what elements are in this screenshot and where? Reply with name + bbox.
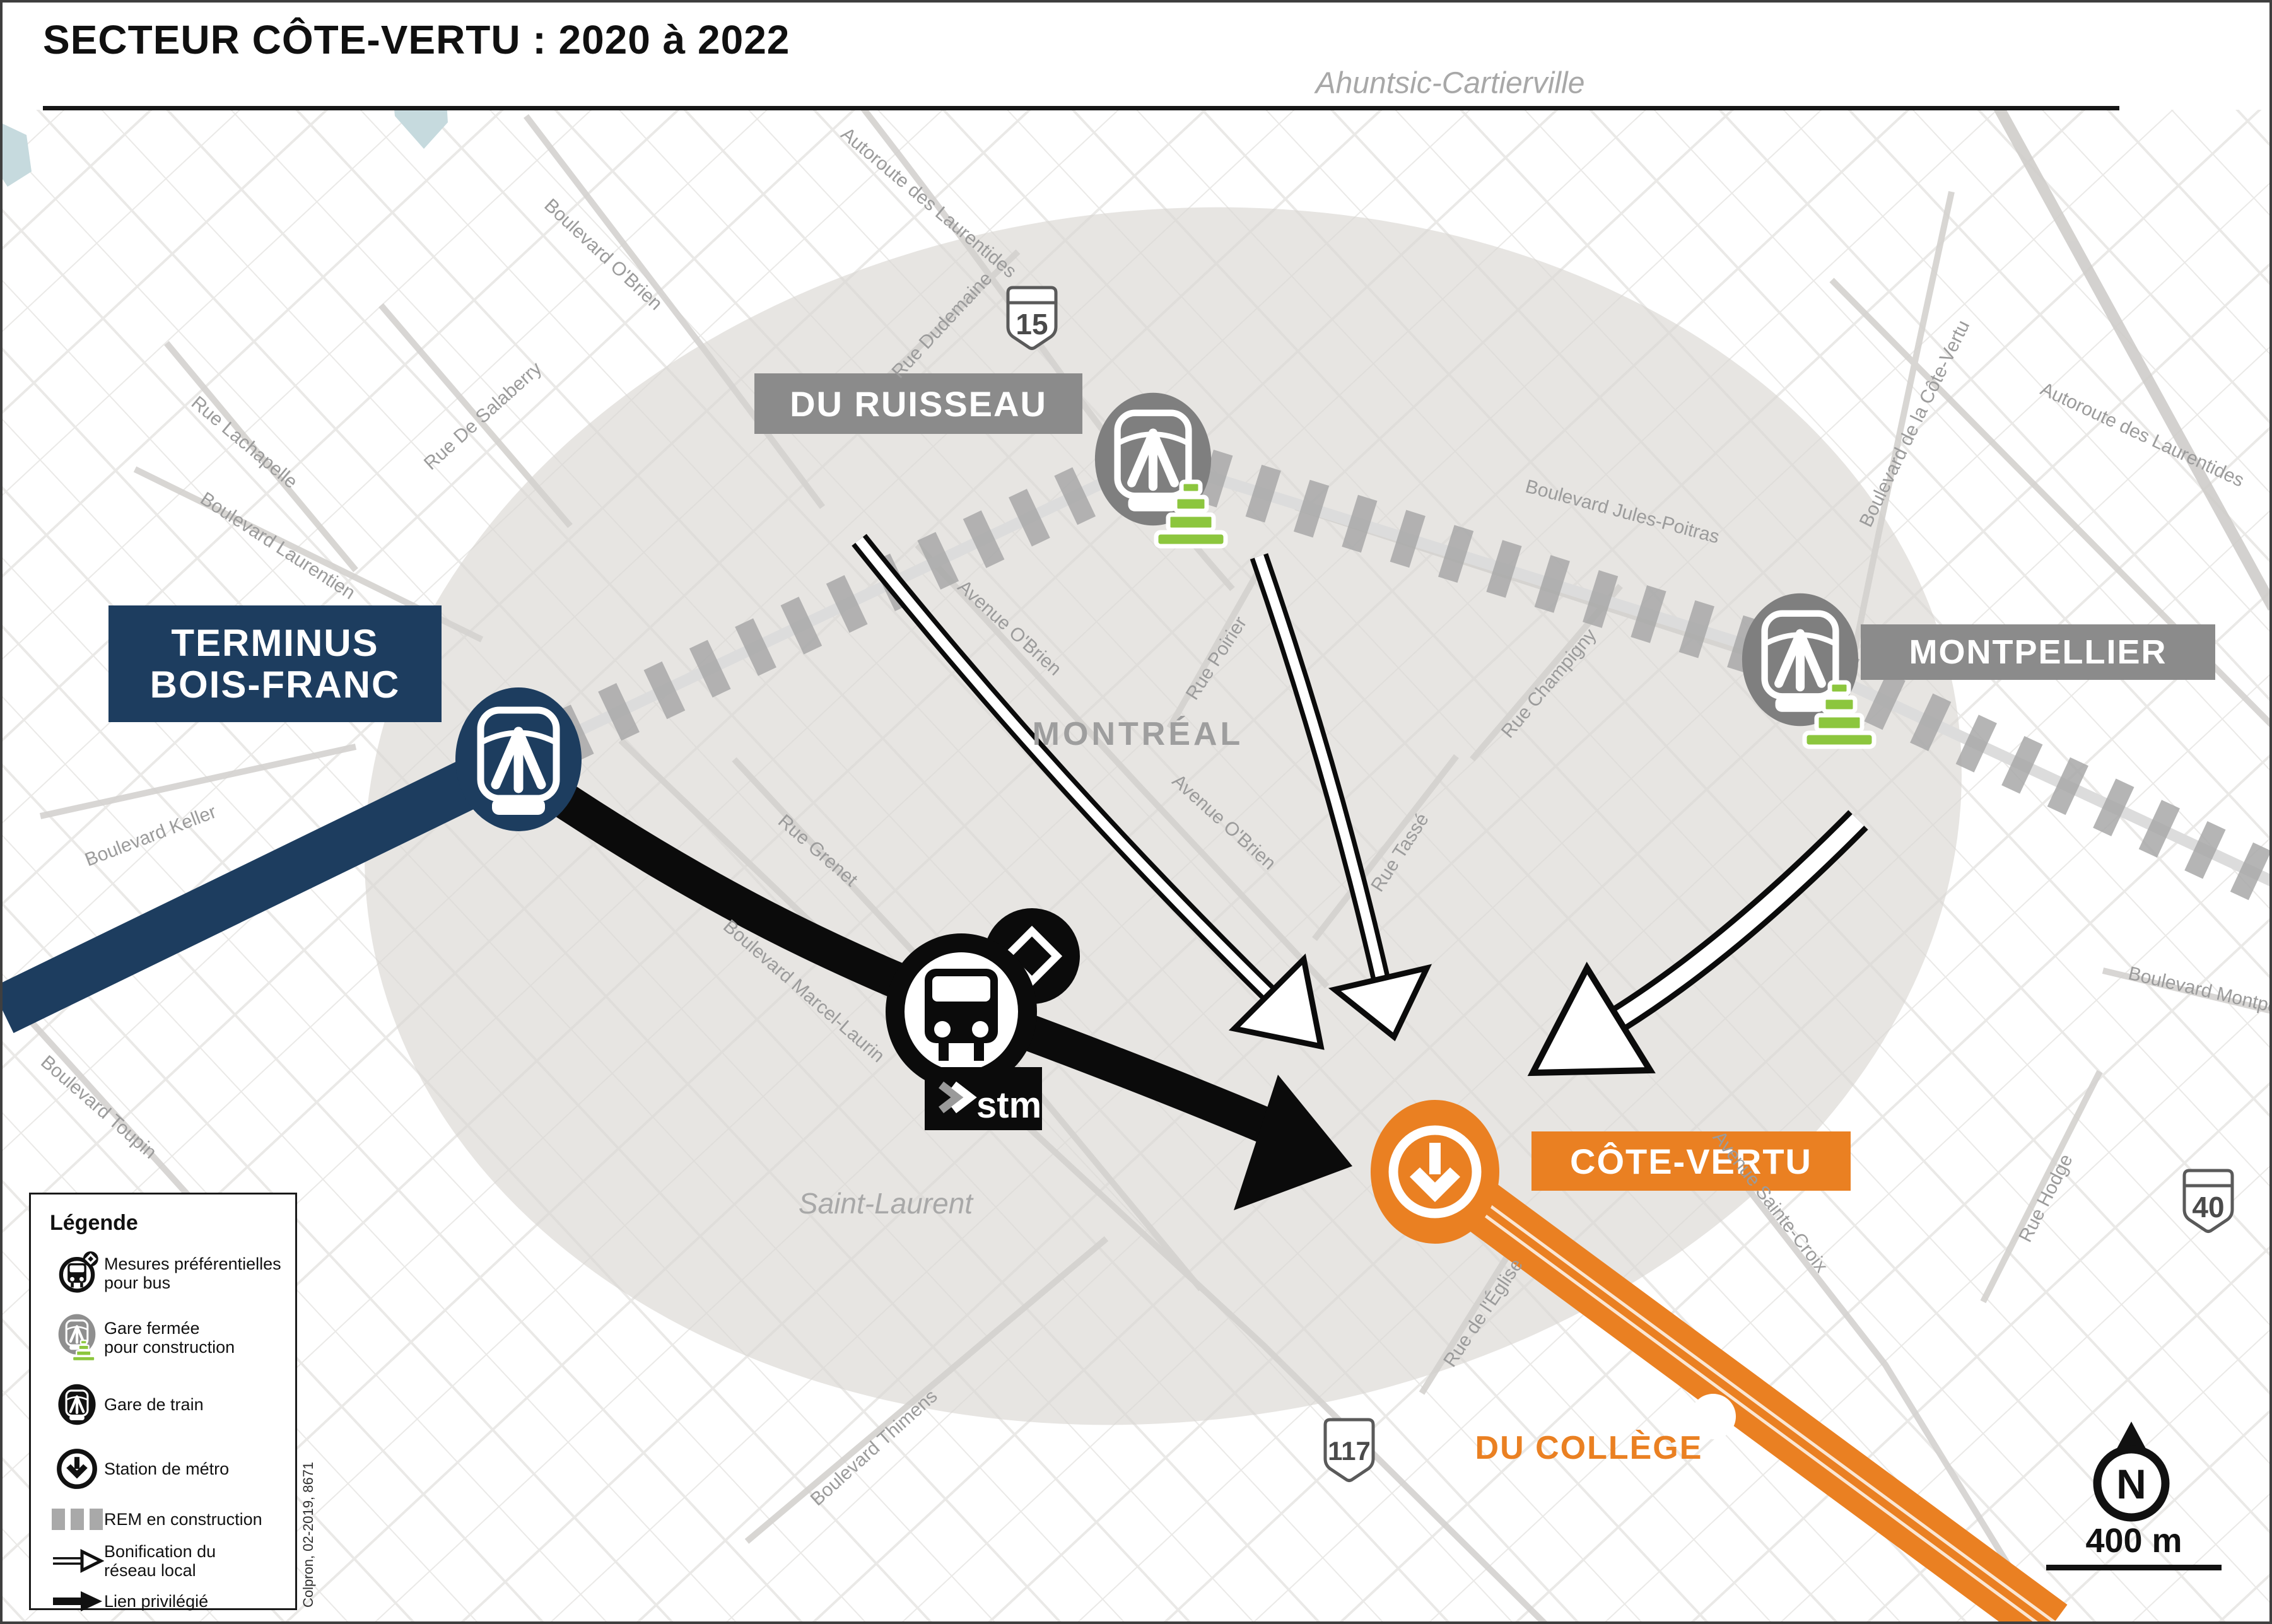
svg-text:117: 117 — [1328, 1436, 1371, 1466]
credit-attribution: Colpron, 02-2019, 8671 — [300, 1462, 317, 1608]
stm-logo: stm — [925, 1067, 1042, 1130]
station-label-du-college: DU COLLÈGE — [1472, 1429, 1706, 1467]
station-closed-icon — [50, 1307, 104, 1368]
bois-franc-train-station-icon — [455, 687, 582, 831]
legend-item-local-network: Bonification du réseau local — [50, 1542, 284, 1580]
map-base — [3, 3, 2272, 1624]
scale-label: 400 m — [2046, 1521, 2222, 1560]
highway-shield-15: 15 — [1008, 288, 1056, 349]
legend-item-train-station: Gare de train — [50, 1377, 284, 1432]
legend-item-bus-preferential: Mesures préférentielles pour bus — [50, 1248, 284, 1299]
borough-label-ahuntsic: Ahuntsic-Cartierville — [1316, 66, 1585, 101]
city-label-montreal: MONTRÉAL — [1033, 715, 1244, 753]
legend-item-station-closed: Gare fermée pour construction — [50, 1307, 284, 1368]
borough-label-saint-laurent: Saint-Laurent — [799, 1186, 973, 1220]
scale-bar — [2046, 1565, 2222, 1570]
legend-item-rem-construction: REM en construction — [50, 1505, 284, 1533]
priority-link-arrow-icon — [50, 1589, 104, 1614]
station-label-cote-vertu: CÔTE-VERTU — [1531, 1131, 1851, 1191]
title-divider — [43, 106, 2119, 110]
local-network-arrow-icon — [50, 1548, 104, 1574]
map-artwork: stm 15 117 40 N — [3, 3, 2272, 1624]
legend-item-priority-link: Lien privilégié — [50, 1589, 284, 1614]
train-station-icon — [50, 1377, 104, 1432]
svg-text:15: 15 — [1016, 308, 1048, 341]
legend-panel: Légende Mesures préférentielles pour bus — [29, 1193, 297, 1610]
page-title: SECTEUR CÔTE-VERTU : 2020 à 2022 — [43, 16, 790, 63]
station-label-montpellier: MONTPELLIER — [1861, 624, 2215, 680]
legend-title: Légende — [50, 1211, 284, 1236]
svg-text:40: 40 — [2192, 1191, 2224, 1224]
legend-item-metro-station: Station de métro — [50, 1441, 284, 1497]
highway-shield-40: 40 — [2184, 1171, 2232, 1232]
map-infographic: stm 15 117 40 N — [0, 0, 2272, 1624]
highway-shield-117: 117 — [1325, 1420, 1373, 1481]
metro-station-icon — [50, 1441, 104, 1497]
cote-vertu-metro-icon — [1371, 1100, 1499, 1244]
rem-construction-icon — [50, 1505, 104, 1533]
svg-text:N: N — [2116, 1461, 2146, 1507]
station-label-terminus-bois-franc: TERMINUS BOIS-FRANC — [108, 605, 442, 722]
station-label-du-ruisseau: DU RUISSEAU — [754, 373, 1082, 434]
stm-logo-text: stm — [976, 1085, 1041, 1126]
bus-preferential-icon — [50, 1248, 104, 1299]
